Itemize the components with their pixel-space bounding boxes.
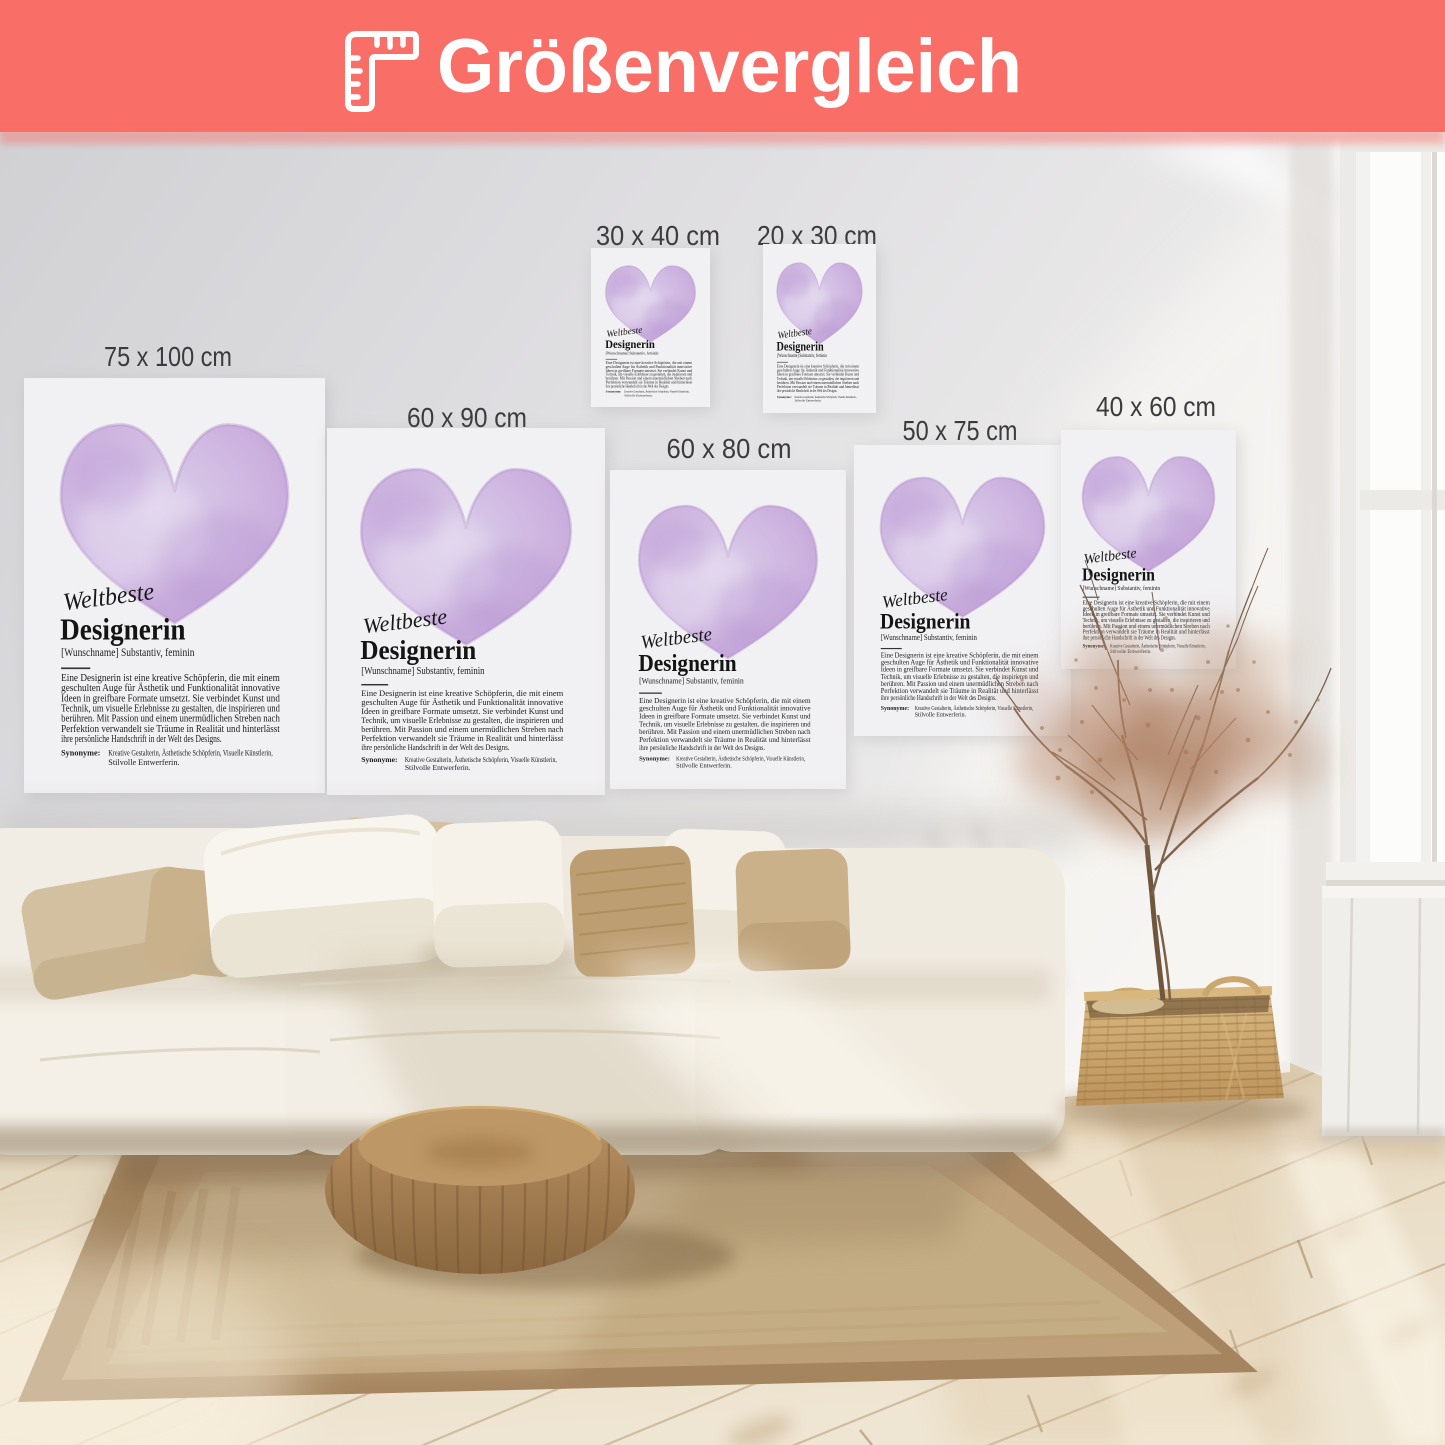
svg-text:75 x 100 cm: 75 x 100 cm xyxy=(104,341,232,372)
svg-text:50 x 75 cm: 50 x 75 cm xyxy=(903,415,1018,446)
svg-text:Größenvergleich: Größenvergleich xyxy=(437,24,1022,109)
svg-text:30 x 40 cm: 30 x 40 cm xyxy=(596,220,720,251)
svg-text:60 x 80 cm: 60 x 80 cm xyxy=(667,433,792,464)
svg-text:40 x 60 cm: 40 x 60 cm xyxy=(1096,391,1216,422)
